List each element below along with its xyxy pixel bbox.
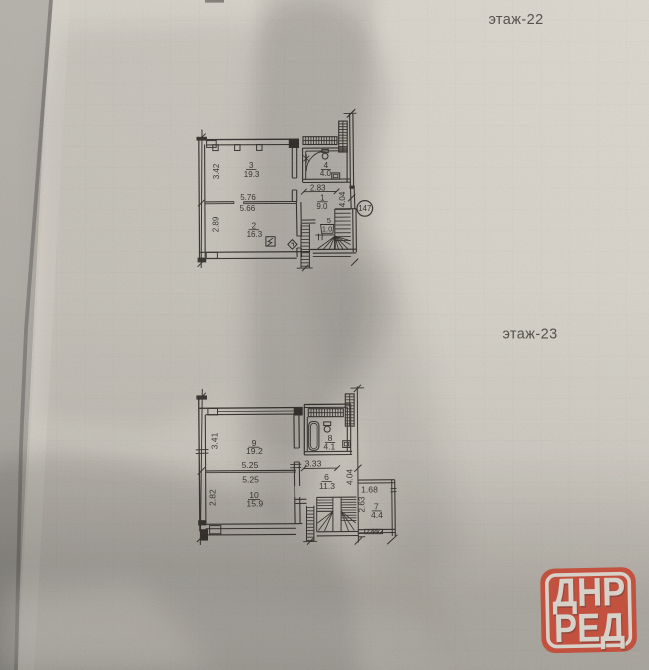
svg-text:РЕД: РЕД xyxy=(554,606,626,651)
